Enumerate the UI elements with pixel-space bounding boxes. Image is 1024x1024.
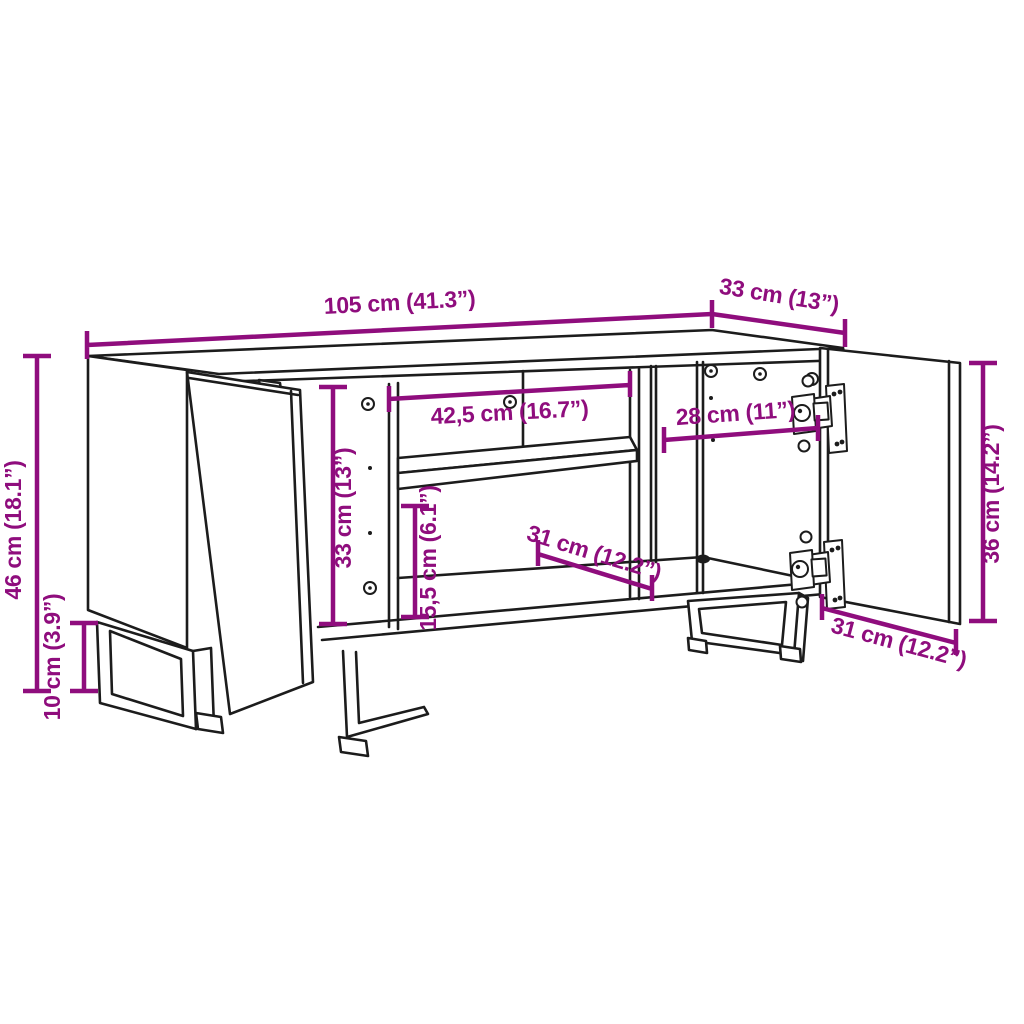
dimension-height-label: 46 cm (18.1”) <box>0 460 26 599</box>
dimension-door-height-label: 36 cm (14.2”) <box>978 424 1004 563</box>
dimension-shelf-depth-label: 31 cm (12.2”) <box>524 520 665 586</box>
left-side-panel <box>88 356 187 648</box>
dimension-door-height: 36 cm (14.2”) <box>969 363 1004 621</box>
dimension-lower-height: 15,5 cm (6.1”) <box>401 485 441 630</box>
dimension-interior-height-label: 33 cm (13”) <box>330 448 356 569</box>
dowel-dot <box>368 466 372 470</box>
dimension-diagram: 105 cm (41.3”) 33 cm (13”) 46 cm (18.1”)… <box>0 0 1024 1024</box>
middle-leg <box>339 651 428 756</box>
dimension-leg-height-label: 10 cm (3.9”) <box>39 594 65 721</box>
dimension-interior-height: 33 cm (13”) <box>319 387 356 624</box>
dimension-width-label: 105 cm (41.3”) <box>323 285 476 319</box>
right-leg-foot <box>688 638 707 653</box>
dowel-dot <box>368 531 372 535</box>
shelf <box>398 437 637 489</box>
dimension-shelf-depth: 31 cm (12.2”) <box>524 520 665 601</box>
dimension-right-width-label: 28 cm (11”) <box>675 396 796 430</box>
right-leg-foot <box>780 646 801 662</box>
hinge-bottom-icon <box>790 532 845 610</box>
dimension-depth-label: 33 cm (13”) <box>718 273 841 318</box>
dimension-shelf-width: 42,5 cm (16.7”) <box>389 371 630 429</box>
floor-screw-icon <box>696 555 710 564</box>
cabinet-drawing: 105 cm (41.3”) 33 cm (13”) 46 cm (18.1”)… <box>0 0 1024 1024</box>
middle-leg-foot <box>339 737 368 756</box>
dimension-lower-height-label: 15,5 cm (6.1”) <box>415 485 441 630</box>
dimension-leg-height: 10 cm (3.9”) <box>39 594 98 721</box>
back-panel-edge <box>651 366 656 562</box>
left-divider <box>389 383 398 629</box>
right-leg <box>688 593 808 662</box>
dimension-shelf-width-label: 42,5 cm (16.7”) <box>430 395 589 429</box>
dowel-dot <box>709 396 713 400</box>
left-leg-foot <box>196 713 223 733</box>
top-panel <box>88 330 843 374</box>
left-door <box>187 372 313 714</box>
dowel-dot <box>711 438 715 442</box>
